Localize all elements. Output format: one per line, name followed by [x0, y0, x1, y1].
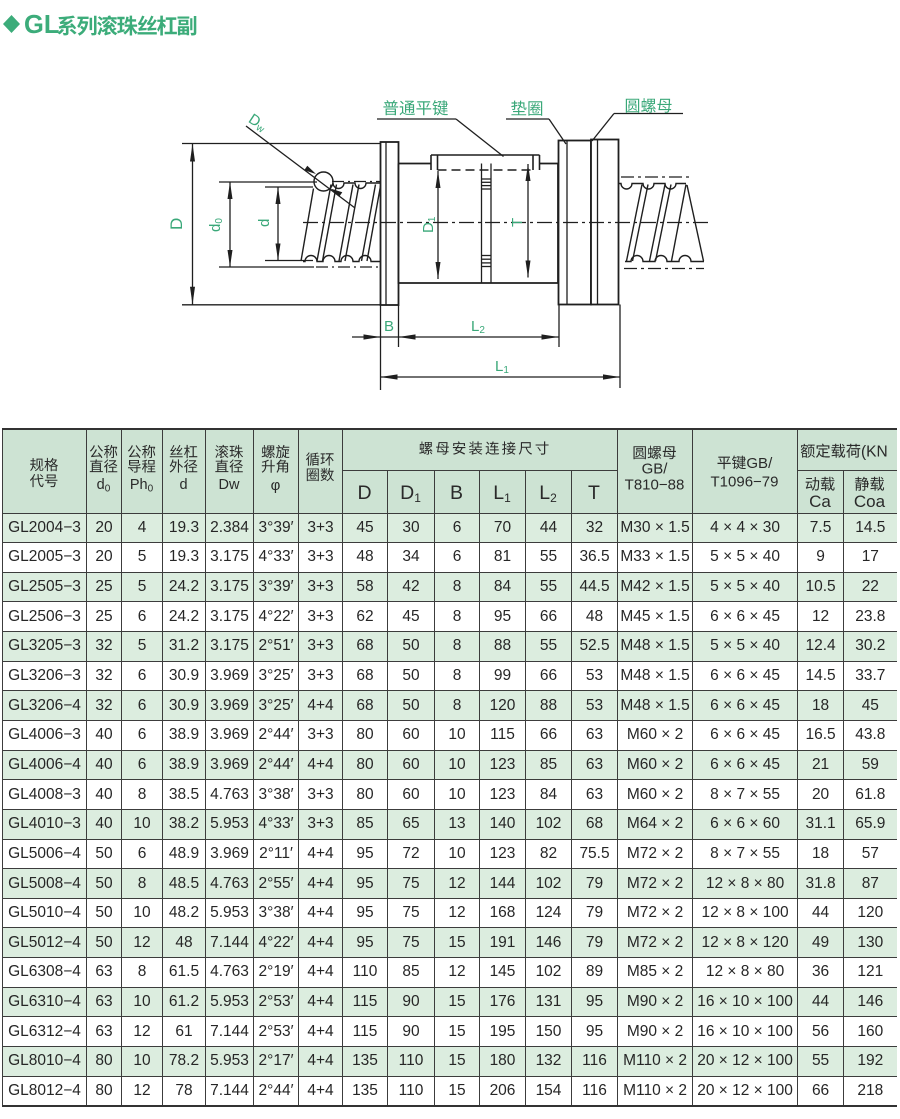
svg-text:GL: GL	[24, 11, 59, 39]
svg-text:T: T	[588, 482, 600, 504]
svg-text:d0: d0	[97, 477, 111, 495]
svg-text:(KN: (KN	[861, 444, 888, 461]
svg-text:GB/: GB/	[642, 461, 669, 478]
svg-text:GB/: GB/	[746, 455, 773, 472]
svg-text:B: B	[450, 482, 463, 504]
svg-text:T810−88: T810−88	[625, 477, 685, 494]
svg-text:D: D	[357, 482, 371, 504]
svg-text:Coa: Coa	[854, 492, 886, 511]
svg-text:D1: D1	[400, 482, 421, 505]
svg-text:Ca: Ca	[809, 492, 831, 511]
svg-text:Ph0: Ph0	[130, 477, 154, 495]
svg-text:φ: φ	[271, 477, 281, 494]
svg-text:L1: L1	[493, 482, 511, 505]
svg-text:L2: L2	[539, 482, 557, 505]
svg-text:Dw: Dw	[219, 477, 240, 493]
svg-text:T1096−79: T1096−79	[711, 474, 779, 491]
svg-text:d: d	[179, 477, 187, 493]
